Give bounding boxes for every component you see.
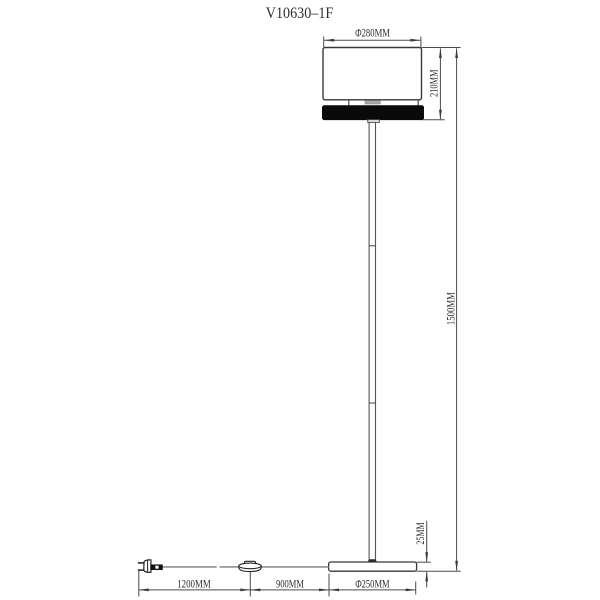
svg-text:Φ250MM: Φ250MM <box>355 578 390 591</box>
svg-text:Φ280MM: Φ280MM <box>355 27 390 40</box>
svg-text:900MM: 900MM <box>276 578 304 591</box>
svg-text:25MM: 25MM <box>414 522 427 544</box>
svg-text:1200MM: 1200MM <box>177 578 211 591</box>
svg-text:1500MM: 1500MM <box>444 292 457 325</box>
svg-text:V10630–1F: V10630–1F <box>266 5 334 22</box>
svg-text:210MM: 210MM <box>428 69 441 97</box>
